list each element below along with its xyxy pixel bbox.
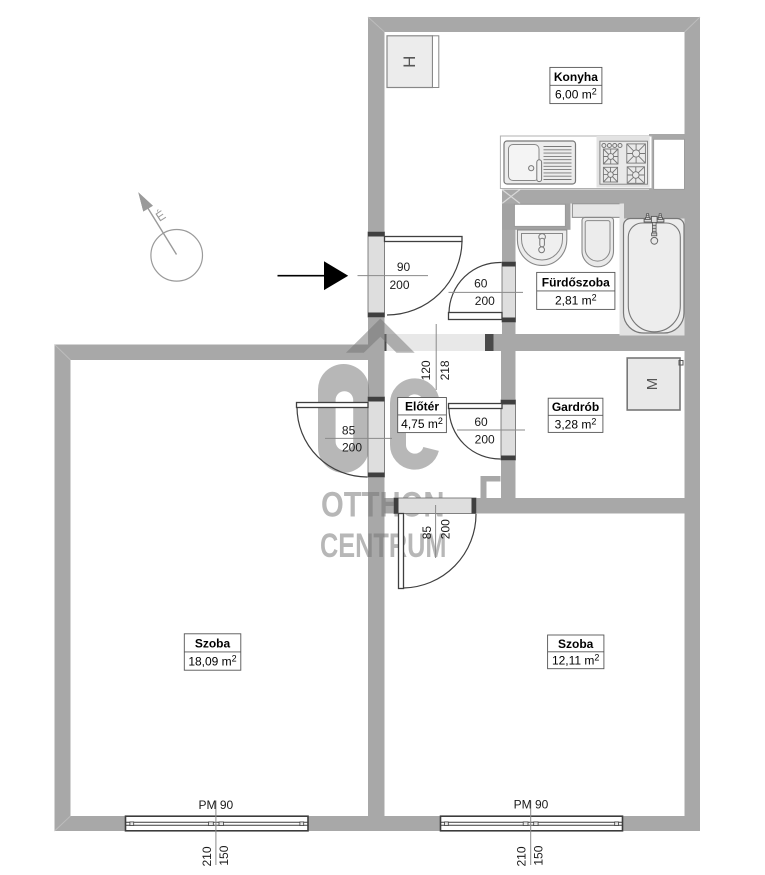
svg-text:18,09 m2: 18,09 m2	[188, 653, 236, 668]
svg-text:Konyha: Konyha	[554, 70, 598, 84]
svg-text:Gardrób: Gardrób	[552, 400, 599, 414]
svg-text:150: 150	[532, 845, 546, 865]
svg-text:150: 150	[217, 845, 231, 865]
svg-text:Előtér: Előtér	[405, 400, 439, 414]
svg-text:85: 85	[342, 424, 356, 438]
svg-text:3,28 m2: 3,28 m2	[555, 416, 597, 431]
svg-text:200: 200	[342, 440, 362, 454]
svg-text:6,00 m2: 6,00 m2	[555, 87, 597, 102]
svg-text:12,11 m2: 12,11 m2	[552, 653, 599, 668]
svg-text:200: 200	[439, 519, 453, 539]
svg-text:Szoba: Szoba	[195, 636, 231, 650]
svg-text:Szoba: Szoba	[558, 637, 594, 651]
svg-text:PM 90: PM 90	[514, 797, 549, 811]
svg-text:200: 200	[475, 294, 495, 308]
svg-text:85: 85	[420, 526, 434, 540]
svg-text:PM 90: PM 90	[199, 798, 234, 812]
svg-text:4,75 m2: 4,75 m2	[401, 416, 443, 431]
svg-text:218: 218	[438, 360, 452, 380]
svg-text:200: 200	[389, 278, 409, 292]
svg-text:210: 210	[515, 846, 529, 866]
svg-text:200: 200	[475, 433, 495, 447]
svg-text:210: 210	[200, 846, 214, 866]
svg-text:90: 90	[397, 260, 411, 274]
svg-text:Fürdőszoba: Fürdőszoba	[542, 275, 610, 289]
svg-text:60: 60	[474, 415, 488, 429]
svg-text:H: H	[400, 56, 419, 68]
svg-text:2,81 m2: 2,81 m2	[555, 292, 597, 307]
svg-text:120: 120	[419, 360, 433, 380]
svg-text:M: M	[644, 378, 661, 391]
svg-text:60: 60	[474, 277, 488, 291]
